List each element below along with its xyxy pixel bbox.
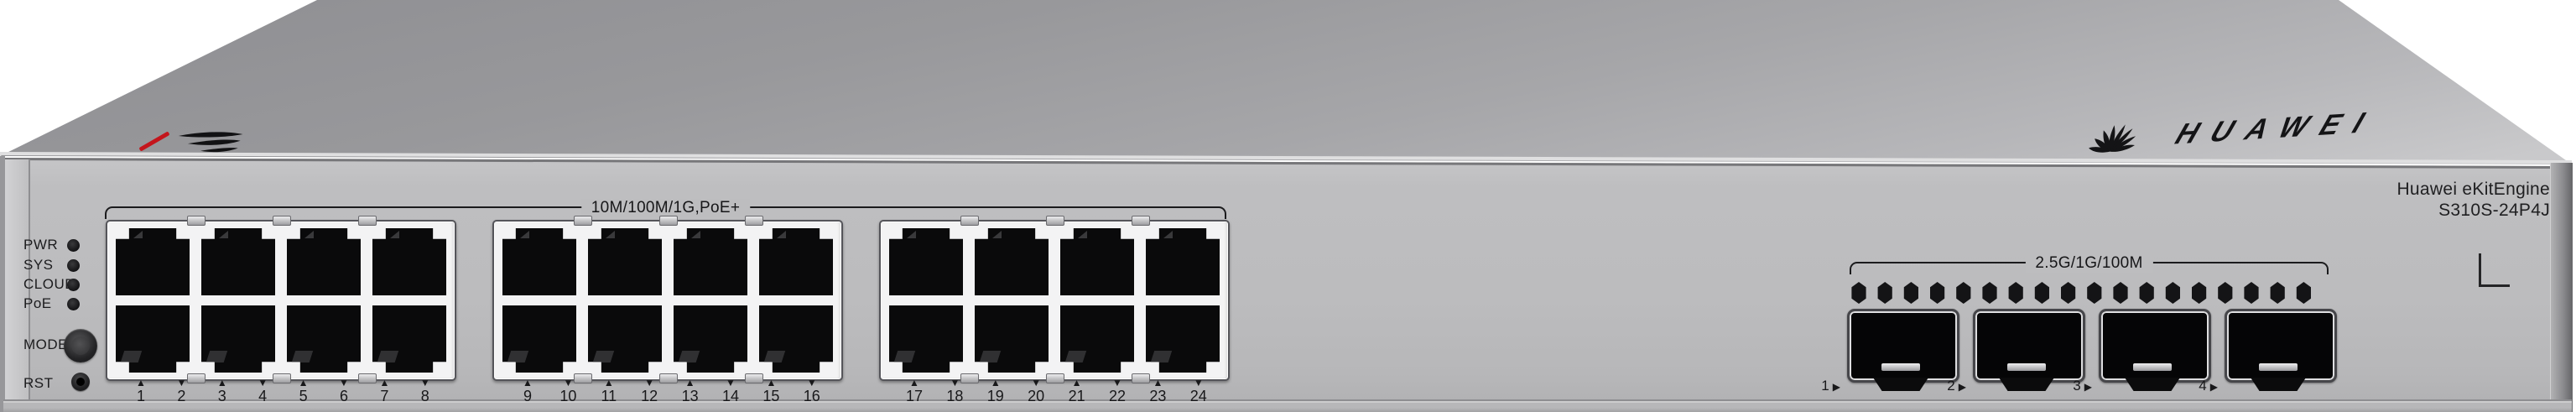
port-number-text: 10 [551,389,585,404]
port-number-21: ▲21 [1060,378,1094,404]
port-number-text: 24 [1182,389,1215,404]
switch-front-view: HUAWEI PWRSYSCLOUDPoE MODE RST 10M/100M/… [0,0,2576,412]
port-number-22: ▼22 [1101,378,1134,404]
product-line: Huawei eKitEngine [2396,179,2550,200]
corner-mark [2479,253,2510,287]
port-number-5: ▲5 [287,378,320,404]
rj45-port-16[interactable] [759,305,833,373]
port-number-text: 23 [1141,389,1174,404]
port-number-15: ▲15 [754,378,788,404]
port-number-2: ▼2 [164,378,198,404]
bezel-tab-top [659,216,678,226]
port-number-13: ▲13 [674,378,707,404]
port-number-3: ▲3 [206,378,239,404]
sfp-latch [1881,363,1920,371]
sfp-number-text: 4 [2199,378,2206,394]
port-number-text: 17 [898,389,931,404]
rj45-port-14[interactable] [674,305,747,373]
sfp-speed-label: 2.5G/1G/100M [2025,254,2152,273]
bezel-tab-top [1046,216,1064,226]
led-indicator-sys [67,259,80,272]
led-label-poe: PoE [23,295,52,312]
port-number-text: 6 [327,389,361,404]
sfp-latch [2133,363,2172,371]
port-number-11: ▲11 [592,378,626,404]
sfp-port-label-2: 2▶ [1947,378,1966,394]
port-number-text: 22 [1101,389,1134,404]
model-text: Huawei eKitEngine S310S-24P4J [2396,179,2550,221]
rj45-port-9[interactable] [502,228,576,295]
mode-button-label: MODE [23,336,68,353]
rj45-port-6[interactable] [287,305,361,373]
port-number-text: 16 [795,389,829,404]
port-number-text: 1 [124,389,158,404]
rj45-port-17[interactable] [889,228,963,295]
port-number-text: 12 [632,389,666,404]
bezel-tab-top [574,216,592,226]
port-number-20: ▼20 [1019,378,1053,404]
sfp-number-text: 1 [1821,378,1829,394]
rj45-port-3[interactable] [201,228,275,295]
sfp-port-label-1: 1▶ [1821,378,1840,394]
sfp-port-3[interactable] [2099,309,2211,383]
rj45-port-18[interactable] [889,305,963,373]
bezel-tab-top [273,216,291,226]
led-label-pwr: PWR [23,237,58,253]
rj45-port-21[interactable] [1060,228,1134,295]
port-number-text: 18 [938,389,971,404]
led-indicator-cloud [67,279,80,291]
rj45-group-1 [106,220,456,381]
right-end-cap [2550,163,2573,412]
led-indicator-poe [67,298,80,310]
led-indicator-pwr [67,239,80,252]
rj45-group-3 [879,220,1230,381]
sfp-port-4[interactable] [2225,309,2337,383]
port-number-4: ▼4 [246,378,279,404]
sfp-port-label-3: 3▶ [2073,378,2092,394]
sfp-bail-tab [1873,378,1928,391]
port-number-16: ▼16 [795,378,829,404]
right-triangle-icon: ▶ [1833,381,1840,393]
port-number-23: ▲23 [1141,378,1174,404]
port-number-text: 13 [674,389,707,404]
sfp-latch [2007,363,2046,371]
sfp-latch [2259,363,2298,371]
sfp-bail-tab [2125,378,2180,391]
rj45-port-2[interactable] [116,305,190,373]
port-number-text: 8 [409,389,442,404]
port-number-8: ▼8 [409,378,442,404]
port-number-7: ▲7 [367,378,401,404]
rj45-port-23[interactable] [1146,228,1220,295]
bezel-tab-top [1132,216,1150,226]
rj45-port-1[interactable] [116,228,190,295]
bezel-tab-top [187,216,206,226]
port-number-9: ▲9 [511,378,544,404]
rj45-port-24[interactable] [1146,305,1220,373]
port-number-text: 11 [592,389,626,404]
rj45-port-15[interactable] [759,228,833,295]
sfp-bail-tab [1999,378,2054,391]
bezel-tab-top [745,216,763,226]
sfp-speed-bracket: 2.5G/1G/100M [1850,262,2329,274]
port-number-text: 3 [206,389,239,404]
port-number-24: ▼24 [1182,378,1215,404]
port-number-text: 7 [367,389,401,404]
right-triangle-icon: ▶ [2210,381,2218,393]
rj45-group-2 [492,220,843,381]
rj45-port-10[interactable] [502,305,576,373]
model-number: S310S-24P4J [2396,200,2550,221]
port-number-6: ▼6 [327,378,361,404]
rj45-port-5[interactable] [287,228,361,295]
sfp-port-label-4: 4▶ [2199,378,2218,394]
sfp-bail-tab [2251,378,2306,391]
bezel-tab-top [358,216,377,226]
rj45-port-7[interactable] [372,228,446,295]
port-number-12: ▼12 [632,378,666,404]
sfp-number-text: 3 [2073,378,2080,394]
sfp-number-text: 2 [1947,378,1954,394]
sfp-port-2[interactable] [1973,309,2085,383]
rj45-speed-label: 10M/100M/1G,PoE+ [581,199,750,217]
port-number-text: 20 [1019,389,1053,404]
led-label-sys: SYS [23,257,54,274]
port-number-17: ▲17 [898,378,931,404]
port-number-text: 2 [164,389,198,404]
port-number-18: ▼18 [938,378,971,404]
port-number-text: 9 [511,389,544,404]
right-triangle-icon: ▶ [2084,381,2092,393]
rj45-port-11[interactable] [588,228,662,295]
port-number-text: 19 [979,389,1012,404]
rj45-port-20[interactable] [975,305,1049,373]
bezel-tab-top [960,216,979,226]
mode-button-cap [71,336,90,355]
port-number-text: 15 [754,389,788,404]
rj45-port-8[interactable] [372,305,446,373]
port-number-19: ▲19 [979,378,1012,404]
port-number-text: 14 [714,389,747,404]
rj45-port-22[interactable] [1060,305,1134,373]
rj45-port-13[interactable] [674,228,747,295]
rj45-port-19[interactable] [975,228,1049,295]
mode-button[interactable] [64,329,97,362]
rj45-port-12[interactable] [588,305,662,373]
port-number-text: 21 [1060,389,1094,404]
sfp-port-1[interactable] [1847,309,1959,383]
right-triangle-icon: ▶ [1959,381,1966,393]
port-number-10: ▼10 [551,378,585,404]
reset-button[interactable] [71,373,90,391]
port-number-1: ▲1 [124,378,158,404]
port-number-14: ▼14 [714,378,747,404]
rj45-port-4[interactable] [201,305,275,373]
port-number-text: 4 [246,389,279,404]
reset-button-hole [76,378,85,386]
reset-button-label: RST [23,375,54,392]
port-number-text: 5 [287,389,320,404]
